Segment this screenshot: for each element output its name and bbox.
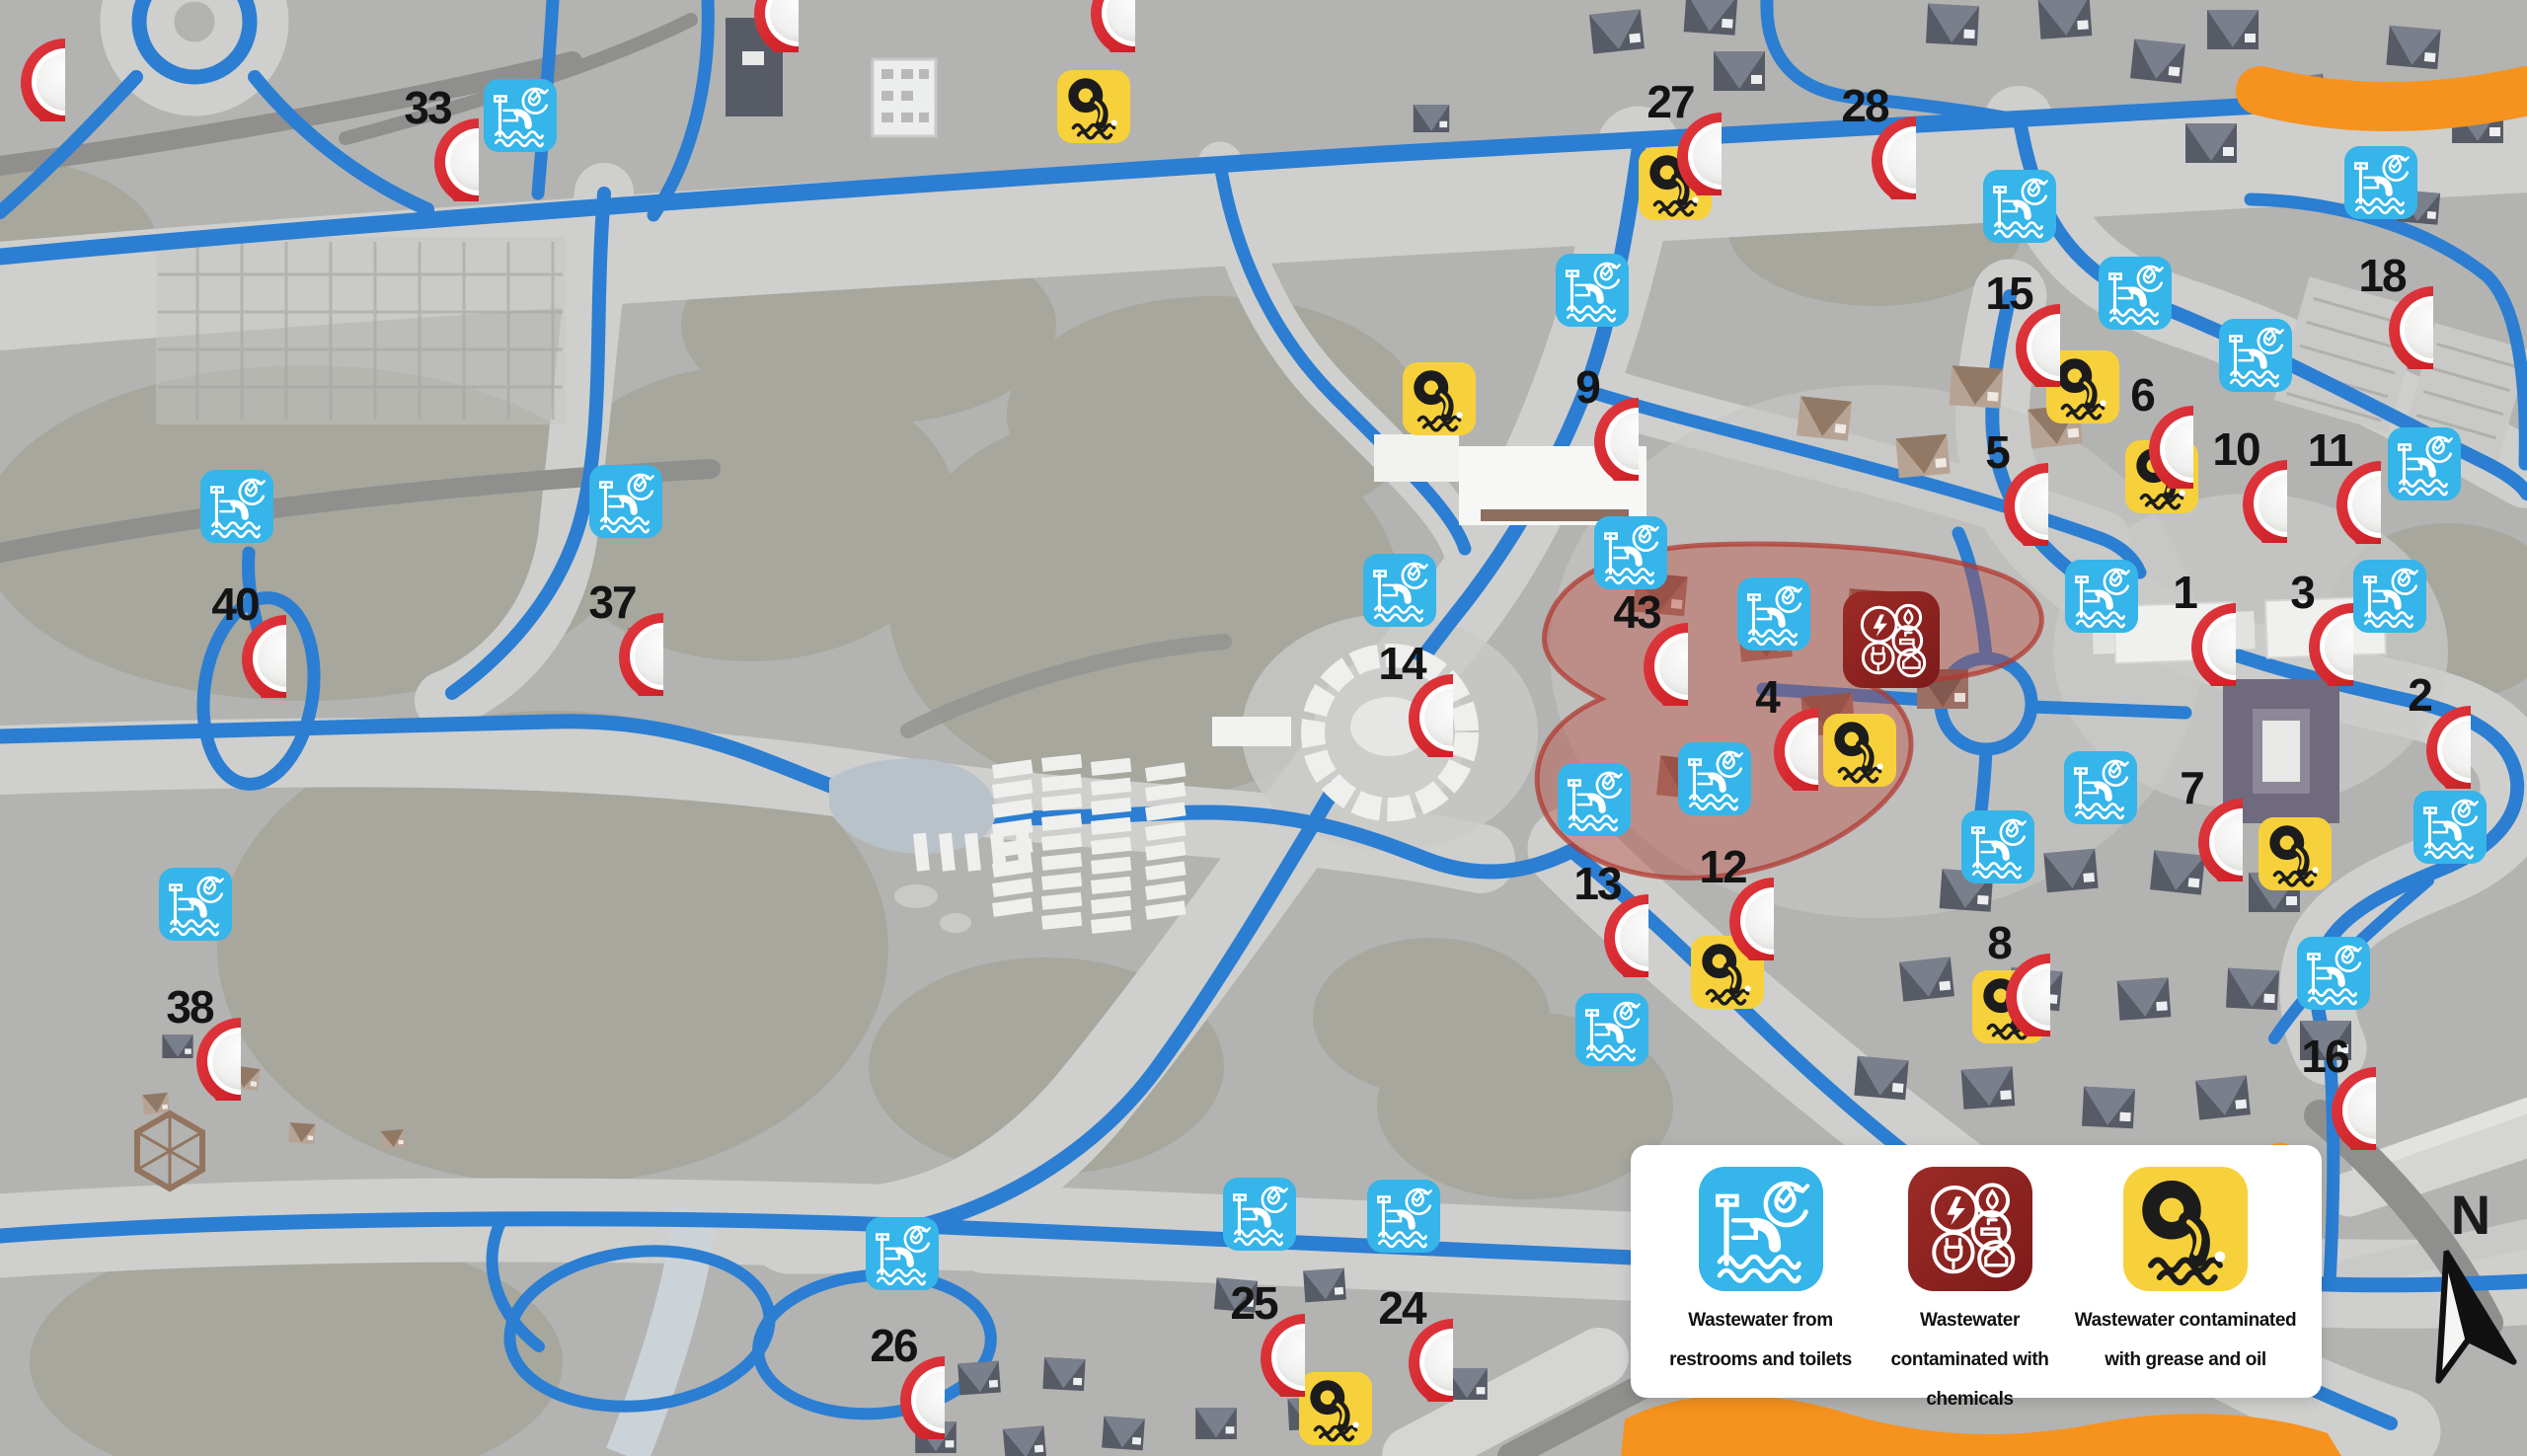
- chemical-wastewater-icon[interactable]: [1843, 591, 1940, 688]
- svg-text:6: 6: [2130, 369, 2154, 421]
- map-pin-43[interactable]: 43: [1585, 558, 1688, 706]
- map-pin-1[interactable]: 1: [2133, 538, 2236, 686]
- compass: N: [2393, 1183, 2527, 1400]
- map-pin-11[interactable]: 11: [2278, 396, 2381, 544]
- map-pin-24[interactable]: 24: [1350, 1254, 1453, 1402]
- svg-text:3: 3: [2290, 567, 2314, 618]
- restroom-wastewater-icon[interactable]: [1983, 170, 2056, 243]
- map-pin-13[interactable]: 13: [1546, 829, 1648, 977]
- chemical-wastewater-icon: [1908, 1167, 2032, 1291]
- map-pin-partial[interactable]: [696, 0, 799, 52]
- restroom-wastewater-icon[interactable]: [2297, 937, 2370, 1010]
- svg-text:12: 12: [1699, 841, 1746, 892]
- grease-wastewater-icon[interactable]: [1403, 362, 1476, 435]
- restroom-wastewater-icon[interactable]: [2353, 560, 2426, 633]
- map-pin-8[interactable]: 8: [1948, 888, 2050, 1036]
- map-pin-33[interactable]: 33: [376, 53, 479, 201]
- map-pin-partial[interactable]: [0, 0, 65, 121]
- map-pin-4[interactable]: 4: [1716, 643, 1818, 791]
- legend-item-restroom: Wastewater from restrooms and toilets: [1645, 1167, 1876, 1380]
- svg-text:10: 10: [2212, 423, 2259, 475]
- svg-text:5: 5: [1985, 426, 2010, 478]
- svg-text:26: 26: [870, 1320, 917, 1371]
- field-plots: [156, 237, 566, 424]
- svg-text:7: 7: [2180, 762, 2203, 813]
- svg-text:28: 28: [1841, 80, 1889, 131]
- svg-text:43: 43: [1613, 586, 1660, 638]
- map-pin-38[interactable]: 38: [138, 953, 241, 1101]
- map-pin-2[interactable]: 2: [2368, 641, 2471, 789]
- legend-item-grease: Wastewater contaminated with grease and …: [2063, 1167, 2308, 1380]
- svg-text:13: 13: [1573, 858, 1621, 909]
- legend-item-chemical: Wastewater contaminated with chemicals: [1878, 1167, 2061, 1419]
- map-pin-5[interactable]: 5: [1946, 398, 2048, 546]
- svg-text:9: 9: [1575, 361, 1599, 413]
- legend-label: Wastewater contaminated with chemicals: [1878, 1301, 2061, 1419]
- map-pin-25[interactable]: 25: [1202, 1249, 1305, 1397]
- legend-label: Wastewater contaminated with grease and …: [2063, 1301, 2308, 1380]
- svg-text:33: 33: [404, 82, 451, 133]
- map-pin-10[interactable]: 10: [2184, 395, 2287, 543]
- restroom-wastewater-icon[interactable]: [1367, 1180, 1440, 1253]
- restroom-wastewater-icon[interactable]: [2344, 146, 2417, 219]
- map-legend: Wastewater from restrooms and toilets Wa…: [1631, 1145, 2322, 1398]
- restroom-wastewater-icon[interactable]: [1558, 763, 1631, 836]
- map-pin-6[interactable]: 6: [2091, 341, 2193, 489]
- svg-text:18: 18: [2358, 250, 2407, 301]
- svg-text:1: 1: [2173, 567, 2197, 618]
- restroom-wastewater-icon[interactable]: [2064, 751, 2137, 824]
- restroom-wastewater-icon[interactable]: [2065, 560, 2138, 633]
- restroom-wastewater-icon[interactable]: [200, 470, 273, 543]
- restroom-wastewater-icon[interactable]: [2099, 257, 2172, 330]
- restroom-wastewater-icon[interactable]: [1737, 577, 1810, 651]
- svg-text:4: 4: [1755, 671, 1781, 723]
- grease-wastewater-icon[interactable]: [2259, 817, 2332, 890]
- map-pin-9[interactable]: 9: [1536, 333, 1639, 481]
- svg-text:15: 15: [1985, 268, 2033, 319]
- restroom-wastewater-icon[interactable]: [159, 868, 232, 941]
- restroom-wastewater-icon[interactable]: [1575, 993, 1648, 1066]
- restroom-wastewater-icon[interactable]: [866, 1217, 939, 1290]
- map-pin-26[interactable]: 26: [842, 1291, 945, 1439]
- map-pin-partial[interactable]: [1033, 0, 1135, 52]
- campus-map: 1 2 3 4 5 6 7 8 9 10 11 12 13 14 15 16 1…: [0, 0, 2527, 1456]
- svg-text:40: 40: [211, 578, 259, 630]
- map-pin-16[interactable]: 16: [2273, 1002, 2376, 1150]
- restroom-wastewater-icon[interactable]: [484, 79, 557, 152]
- north-arrow-icon: [2397, 1238, 2527, 1389]
- svg-text:38: 38: [166, 981, 214, 1033]
- svg-text:24: 24: [1378, 1282, 1427, 1334]
- grease-wastewater-icon[interactable]: [1823, 714, 1896, 787]
- map-pin-3[interactable]: 3: [2251, 538, 2353, 686]
- map-pin-12[interactable]: 12: [1671, 812, 1774, 960]
- svg-text:25: 25: [1230, 1277, 1278, 1329]
- map-pin-15[interactable]: 15: [1957, 239, 2060, 387]
- svg-text:14: 14: [1378, 638, 1427, 689]
- map-pin-27[interactable]: 27: [1619, 47, 1722, 195]
- legend-label: Wastewater from restrooms and toilets: [1645, 1301, 1876, 1380]
- restroom-wastewater-icon[interactable]: [1961, 810, 2034, 883]
- map-pin-28[interactable]: 28: [1813, 51, 1916, 199]
- restroom-wastewater-icon[interactable]: [2388, 427, 2461, 500]
- svg-text:11: 11: [2308, 424, 2353, 476]
- restroom-wastewater-icon[interactable]: [2219, 319, 2292, 392]
- grease-wastewater-icon[interactable]: [1057, 70, 1130, 143]
- restroom-wastewater-icon[interactable]: [589, 465, 662, 538]
- svg-text:27: 27: [1646, 76, 1694, 127]
- restroom-wastewater-icon: [1699, 1167, 1823, 1291]
- svg-text:16: 16: [2301, 1031, 2348, 1082]
- grease-wastewater-icon: [2123, 1167, 2248, 1291]
- map-pin-40[interactable]: 40: [184, 550, 286, 698]
- map-pin-14[interactable]: 14: [1350, 609, 1453, 757]
- map-pin-18[interactable]: 18: [2331, 221, 2433, 369]
- map-pin-37[interactable]: 37: [561, 548, 663, 696]
- restroom-wastewater-icon[interactable]: [2413, 791, 2487, 864]
- compass-north-label: N: [2411, 1183, 2527, 1247]
- restroom-wastewater-icon[interactable]: [1223, 1178, 1296, 1251]
- map-pin-7[interactable]: 7: [2140, 733, 2243, 881]
- svg-text:8: 8: [1987, 917, 2012, 968]
- svg-text:37: 37: [588, 576, 636, 628]
- restroom-wastewater-icon[interactable]: [1556, 254, 1629, 327]
- svg-text:2: 2: [2408, 669, 2431, 721]
